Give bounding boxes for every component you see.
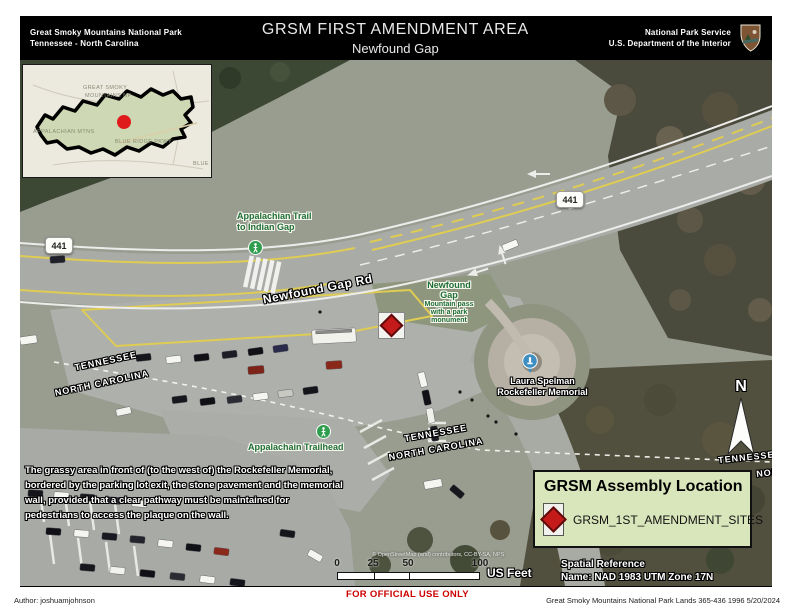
header-bar: Great Smoky Mountains National Park Tenn… (20, 16, 772, 60)
hiker-trailhead-icon-2 (316, 424, 331, 439)
legend-item: GRSM_1ST_AMENDMENT_SITES (543, 503, 750, 536)
route-441-shield-west: 441 (45, 237, 73, 254)
park-name: Great Smoky Mountains National Park (30, 27, 182, 38)
legend-box: GRSM Assembly Location GRSM_1ST_AMENDMEN… (533, 470, 752, 548)
map-title-block: GRSM FIRST AMENDMENT AREA Newfound Gap (262, 21, 529, 56)
agency-block: National Park Service U.S. Department of… (609, 24, 762, 52)
scale-tick-50: 50 (402, 558, 413, 569)
inset-edge-label: BLUE (193, 161, 209, 167)
scale-bar: 0 25 50 100 US Feet (337, 558, 537, 584)
scale-tick-100: 100 (472, 558, 489, 569)
park-states: Tennessee - North Carolina (30, 38, 182, 49)
memorial-label: Laura Spelman Rockefeller Memorial (480, 376, 605, 398)
map-subtitle: Newfound Gap (262, 41, 529, 56)
legend-item-label: GRSM_1ST_AMENDMENT_SITES (573, 513, 763, 527)
inset-park-label: GREAT SMOKY (83, 85, 127, 91)
spatial-reference-title: Spatial Reference (561, 558, 713, 571)
scale-unit-label: US Feet (487, 566, 532, 580)
hiker-trailhead-icon (248, 240, 263, 255)
agency-name: National Park Service (609, 27, 731, 38)
north-label: N (724, 378, 758, 396)
scale-bar-rule (337, 572, 480, 580)
red-dot-location-marker (117, 115, 131, 129)
red-diamond-site-icon (540, 506, 567, 533)
memorial-poi-icon (522, 353, 538, 374)
trailhead-label: Appalachain Trailhead (248, 442, 344, 452)
author-credit: Author: joshuamjohnson (14, 596, 95, 605)
inset-parkway-label: BLUE RIDGE PKWY (115, 139, 172, 145)
department-name: U.S. Department of the Interior (609, 38, 731, 49)
official-use-notice: FOR OFFICIAL USE ONLY (346, 589, 469, 600)
park-name-block: Great Smoky Mountains National Park Tenn… (30, 27, 182, 49)
inset-locator-map: GREAT SMOKY MOUNTAINS NP APPALACHIAN MTN… (22, 64, 212, 178)
map-credits: Great Smoky Mountains National Park Land… (546, 596, 780, 605)
spatial-reference-block: Spatial Reference Name: NAD 1983 UTM Zon… (561, 558, 713, 584)
legend-icon-box (543, 503, 564, 536)
newfound-gap-poi-label: Newfound Gap Mountain pass with a park m… (408, 280, 490, 325)
scale-tick-0: 0 (334, 558, 340, 569)
route-441-shield-east: 441 (556, 191, 584, 208)
red-diamond-icon (379, 313, 403, 337)
first-amendment-site-marker (378, 312, 405, 339)
map-title: GRSM FIRST AMENDMENT AREA (262, 21, 529, 39)
assembly-area-description: The grassy area in front of (to the west… (25, 463, 365, 523)
inset-basemap (23, 65, 211, 177)
map-canvas: GREAT SMOKY MOUNTAINS NP APPALACHIAN MTN… (20, 60, 772, 587)
legend-title: GRSM Assembly Location (544, 478, 750, 496)
inset-park-label-2: MOUNTAINS NP (85, 93, 132, 99)
north-arrow-icon (724, 396, 758, 460)
appalachian-trail-label: Appalachian Trail to Indian Gap (237, 211, 312, 233)
map-document: Great Smoky Mountains National Park Tenn… (0, 0, 792, 612)
spatial-reference-name: Name: NAD 1983 UTM Zone 17N (561, 571, 713, 584)
nps-arrowhead-icon (739, 24, 762, 52)
inset-region-label: APPALACHIAN MTNS (33, 129, 95, 135)
scale-tick-25: 25 (367, 558, 378, 569)
